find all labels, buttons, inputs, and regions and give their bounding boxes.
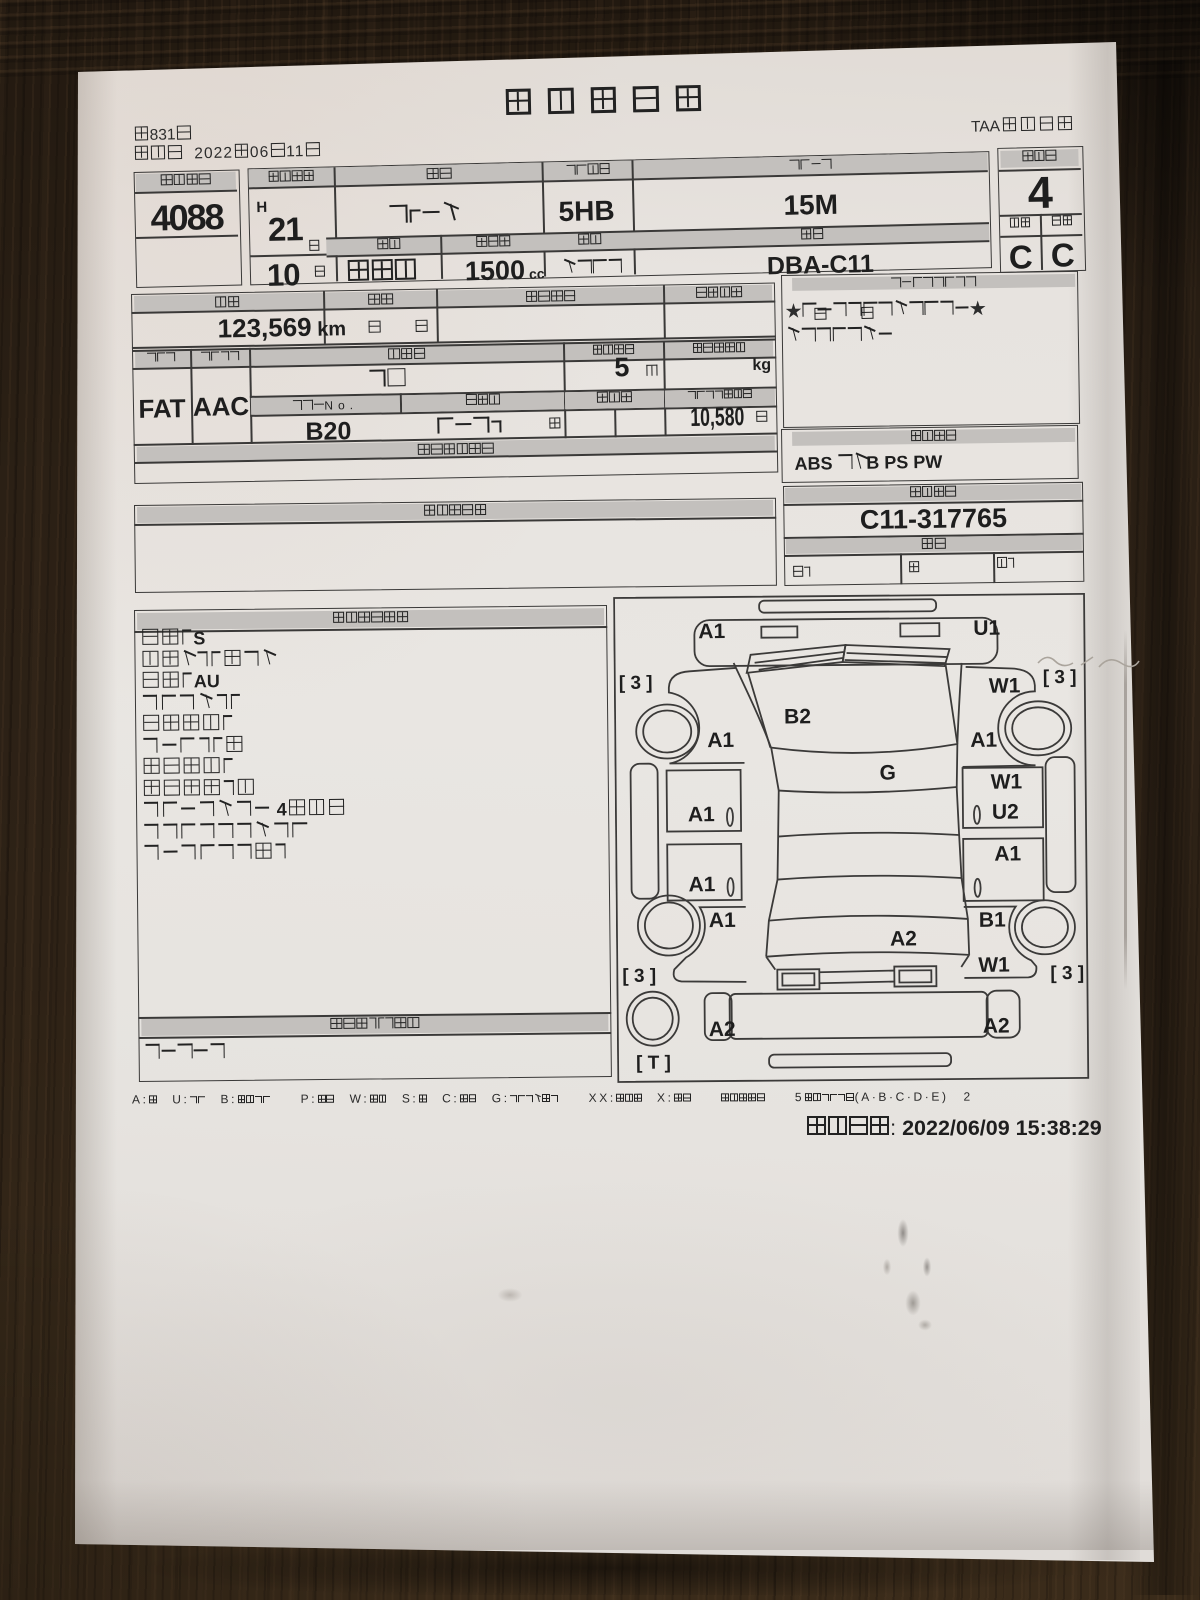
svg-text:W1: W1 [989, 674, 1021, 697]
svg-text:A2: A2 [709, 1018, 736, 1041]
svg-text:A1: A1 [709, 909, 736, 932]
svg-text:U1: U1 [973, 617, 1000, 640]
svg-text:A1: A1 [688, 873, 715, 896]
svg-text:B2: B2 [784, 705, 811, 728]
svg-text:[ T ]: [ T ] [636, 1053, 671, 1074]
svg-text:B1: B1 [979, 909, 1006, 932]
svg-text:[ 3 ]: [ 3 ] [619, 673, 653, 694]
svg-text:A2: A2 [983, 1015, 1010, 1038]
svg-text:[ 3 ]: [ 3 ] [1050, 963, 1084, 984]
svg-text:A1: A1 [994, 842, 1021, 865]
svg-text:W1: W1 [978, 954, 1010, 977]
svg-text:A2: A2 [890, 927, 917, 950]
svg-text:G: G [879, 762, 896, 785]
svg-text:A1: A1 [688, 803, 715, 826]
svg-text:W1: W1 [991, 770, 1023, 793]
svg-text:A1: A1 [970, 729, 997, 752]
svg-text:[ 3 ]: [ 3 ] [622, 966, 656, 987]
svg-text:U2: U2 [992, 800, 1019, 823]
svg-text:A1: A1 [707, 729, 734, 752]
svg-text:A1: A1 [698, 620, 725, 643]
